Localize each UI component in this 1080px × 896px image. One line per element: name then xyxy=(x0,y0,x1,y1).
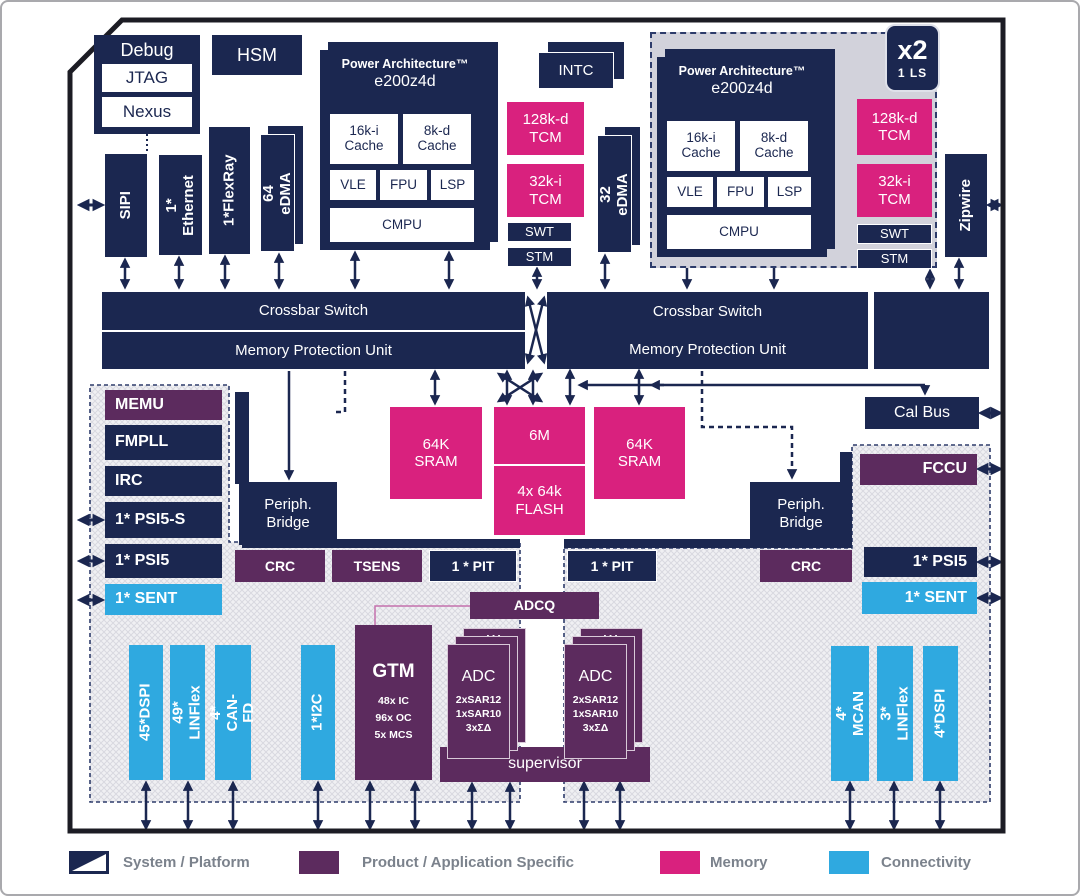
dspi-left-block: 45*DSPI xyxy=(129,645,163,780)
legend-swatch-memory xyxy=(660,851,700,874)
memu-block: MEMU xyxy=(105,390,222,420)
legend-label-system: System / Platform xyxy=(123,851,250,874)
dual-core-badge: x2 1 LS xyxy=(885,24,940,92)
nexus-block: Nexus xyxy=(102,97,192,127)
intc-block: INTC xyxy=(538,52,614,89)
i2c-block: 1*I2C xyxy=(301,645,335,780)
crc-right-block: CRC xyxy=(760,550,852,582)
edma64-block: 64 eDMA xyxy=(260,134,295,252)
dspi-right-block: 4*DSPI xyxy=(923,646,958,781)
crossbar-right: Crossbar Switch Memory Protection Unit xyxy=(547,292,868,369)
flash-block: 6M 4x 64k FLASH xyxy=(494,407,585,535)
legend-swatch-product xyxy=(299,851,339,874)
legend-label-product: Product / Application Specific xyxy=(362,851,574,874)
periph-bridge-left: Periph. Bridge xyxy=(239,482,337,545)
legend-label-memory: Memory xyxy=(710,851,768,874)
linflex-right-block: 3* LINFlex xyxy=(877,646,913,781)
swt-left: SWT xyxy=(507,222,572,242)
crc-left-block: CRC xyxy=(235,550,325,582)
crossbar-extension xyxy=(874,292,989,369)
fpu-block: FPU xyxy=(380,170,427,200)
legend-label-connectivity: Connectivity xyxy=(881,851,971,874)
sent-right-block: 1* SENT xyxy=(862,582,977,614)
fccu-block: FCCU xyxy=(860,454,977,485)
legend-swatch-system xyxy=(69,851,109,874)
sram-right: 64K SRAM xyxy=(594,407,685,499)
core-arch-label: Power Architecture™ xyxy=(320,57,490,71)
lockstep-label: 1 LS xyxy=(898,67,927,79)
adcq-block: ADCQ xyxy=(470,592,599,619)
lsp-block: LSP xyxy=(768,177,811,207)
psi5-right-block: 1* PSI5 xyxy=(864,547,977,577)
gtm-channels: 48x IC 96x OC 5x MCS xyxy=(375,693,413,743)
periph-bridge-right: Periph. Bridge xyxy=(750,482,852,545)
sent-left-block: 1* SENT xyxy=(105,584,222,615)
tcm-data-right: 128k-d TCM xyxy=(857,99,932,155)
core-left-block: Power Architecture™ e200z4d 16k-i Cache … xyxy=(320,50,490,250)
tsens-block: TSENS xyxy=(332,550,422,582)
adc2-block: ADC 2xSAR12 1xSAR10 3xΣΔ xyxy=(564,644,627,759)
icache-block: 16k-i Cache xyxy=(667,121,735,171)
core-model-label: e200z4d xyxy=(320,73,490,91)
gtm-title: GTM xyxy=(372,661,414,683)
flash-size-label: 6M xyxy=(494,407,585,466)
adc1-block: ADC 2xSAR12 1xSAR10 3xΣΔ xyxy=(447,644,510,759)
psi5-left-block: 1* PSI5 xyxy=(105,544,222,578)
core-count-label: x2 xyxy=(897,37,927,64)
lsp-block: LSP xyxy=(431,170,474,200)
linflex-left-block: 49* LINFlex xyxy=(170,645,205,780)
canfd-block: 4* CAN-FD xyxy=(215,645,251,780)
debug-label: Debug xyxy=(120,40,173,61)
vle-block: VLE xyxy=(667,177,713,207)
psi5s-left-block: 1* PSI5-S xyxy=(105,502,222,538)
flash-config-label: 4x 64k FLASH xyxy=(494,466,585,535)
tcm-instr-right: 32k-i TCM xyxy=(857,164,932,217)
legend-swatch-connectivity xyxy=(829,851,869,874)
pit-right-block: 1 * PIT xyxy=(567,550,657,582)
stm-left: STM xyxy=(507,247,572,267)
flexray-block: 1*FlexRay xyxy=(209,127,250,254)
mcan-block: 4* MCAN xyxy=(831,646,869,781)
fpu-block: FPU xyxy=(717,177,764,207)
vle-block: VLE xyxy=(330,170,376,200)
dcache-block: 8k-d Cache xyxy=(403,114,471,164)
calbus-block: Cal Bus xyxy=(865,397,979,429)
hsm-block: HSM xyxy=(212,35,302,75)
swt-right: SWT xyxy=(857,224,932,244)
ethernet-block: 1* Ethernet xyxy=(159,155,202,255)
gtm-block: GTM 48x IC 96x OC 5x MCS xyxy=(355,625,432,780)
tcm-data-left: 128k-d TCM xyxy=(507,102,584,155)
stm-right: STM xyxy=(857,249,932,269)
mpu-label: Memory Protection Unit xyxy=(102,332,525,370)
core-right-block: Power Architecture™ e200z4d 16k-i Cache … xyxy=(657,57,827,257)
icache-block: 16k-i Cache xyxy=(330,114,398,164)
fmpll-block: FMPLL xyxy=(105,425,222,460)
sipi-block: SIPI xyxy=(105,154,147,257)
debug-block: Debug JTAG Nexus xyxy=(94,35,200,134)
zipwire-block: Zipwire xyxy=(945,154,987,257)
edma32-block: 32 eDMA xyxy=(597,135,632,253)
dcache-block: 8k-d Cache xyxy=(740,121,808,171)
sram-left: 64K SRAM xyxy=(390,407,482,499)
jtag-block: JTAG xyxy=(102,64,192,92)
cmpu-block: CMPU xyxy=(667,215,811,249)
soc-block-diagram: Debug JTAG Nexus HSM SIPI 1* Ethernet 1*… xyxy=(0,0,1080,896)
pit-left-block: 1 * PIT xyxy=(429,550,517,582)
crossbar-left: Crossbar Switch Memory Protection Unit xyxy=(102,292,525,369)
cmpu-block: CMPU xyxy=(330,208,474,242)
irc-block: IRC xyxy=(105,466,222,496)
tcm-instr-left: 32k-i TCM xyxy=(507,164,584,217)
crossbar-switch-label: Crossbar Switch xyxy=(102,292,525,332)
